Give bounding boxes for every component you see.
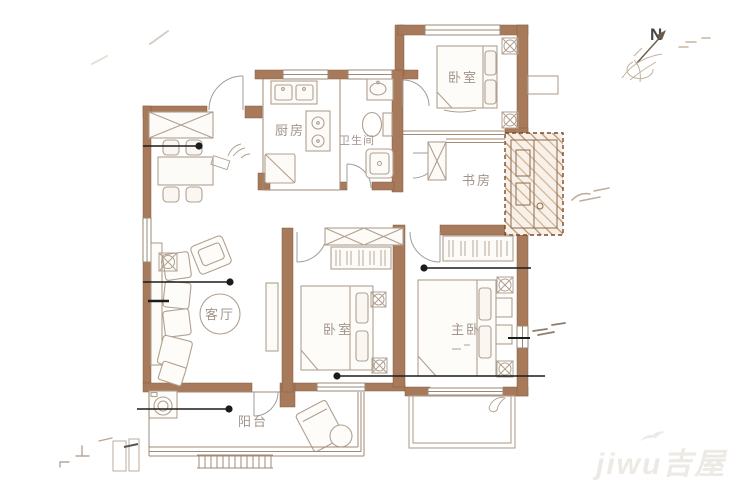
window-living-left: [143, 218, 151, 262]
leader-master-top: [420, 264, 531, 271]
balcony-table: [330, 425, 352, 447]
master-door: [410, 232, 440, 262]
bath-sink: [367, 79, 393, 100]
label-bedroom-middle: 卧室: [323, 322, 353, 337]
label-bedroom-north: 卧室: [448, 70, 478, 85]
dining-table: [158, 157, 213, 185]
label-study: 书房: [462, 173, 492, 188]
plant-sketch: [211, 144, 250, 170]
north-compass: N: [622, 25, 666, 82]
wardrobe-middle-top: [325, 228, 403, 245]
window-bath: [348, 70, 392, 79]
kitchen-sink: [271, 81, 317, 104]
label-bathroom: 卫生间: [339, 133, 375, 147]
tv-cabinet: [266, 283, 278, 351]
label-balcony: 阳台: [238, 414, 268, 429]
dining-cabinet: [149, 112, 213, 138]
watermark-text: jiwu吉屋: [592, 448, 728, 481]
ac-ledge: [528, 76, 558, 94]
window-kitchen: [283, 70, 328, 79]
watermark: jiwu吉屋: [592, 431, 728, 481]
window-bedroom-north: [425, 25, 500, 35]
bedroom-middle-door: [297, 232, 327, 262]
washing-machine: [149, 391, 177, 418]
shower: [366, 149, 393, 178]
label-living-room: 客厅: [205, 307, 235, 322]
study-cabinet: [428, 142, 446, 180]
balcony-door: [254, 392, 278, 416]
nightstand-master-1: [496, 298, 512, 317]
label-master-bedroom: 主卧: [451, 322, 481, 337]
window-master: [428, 388, 503, 395]
stove: [306, 111, 330, 151]
entry-door: [209, 76, 243, 110]
window-bedroom-middle: [317, 383, 365, 391]
wardrobe-middle: [331, 247, 391, 269]
label-kitchen: 厨房: [275, 123, 305, 138]
sofa: [151, 243, 193, 370]
fridge: [265, 154, 295, 183]
bedroom-north-door: [403, 80, 429, 106]
railing: [197, 455, 273, 468]
compass-sketch: [622, 48, 662, 82]
shaft-hatch: [505, 133, 563, 235]
floor-plan-image: N 厨房 卫生间 卧室 书房 客厅 卧室 主卧 阳台 jiwu吉屋: [0, 0, 740, 493]
wardrobe-master: [443, 236, 513, 261]
flower-bed: [409, 396, 515, 448]
floor-plan: N 厨房 卫生间 卧室 书房 客厅 卧室 主卧 阳台 jiwu吉屋: [0, 0, 740, 493]
armchair: [190, 235, 233, 276]
toilet: [363, 113, 393, 137]
nightstand-master-2: [496, 325, 512, 344]
